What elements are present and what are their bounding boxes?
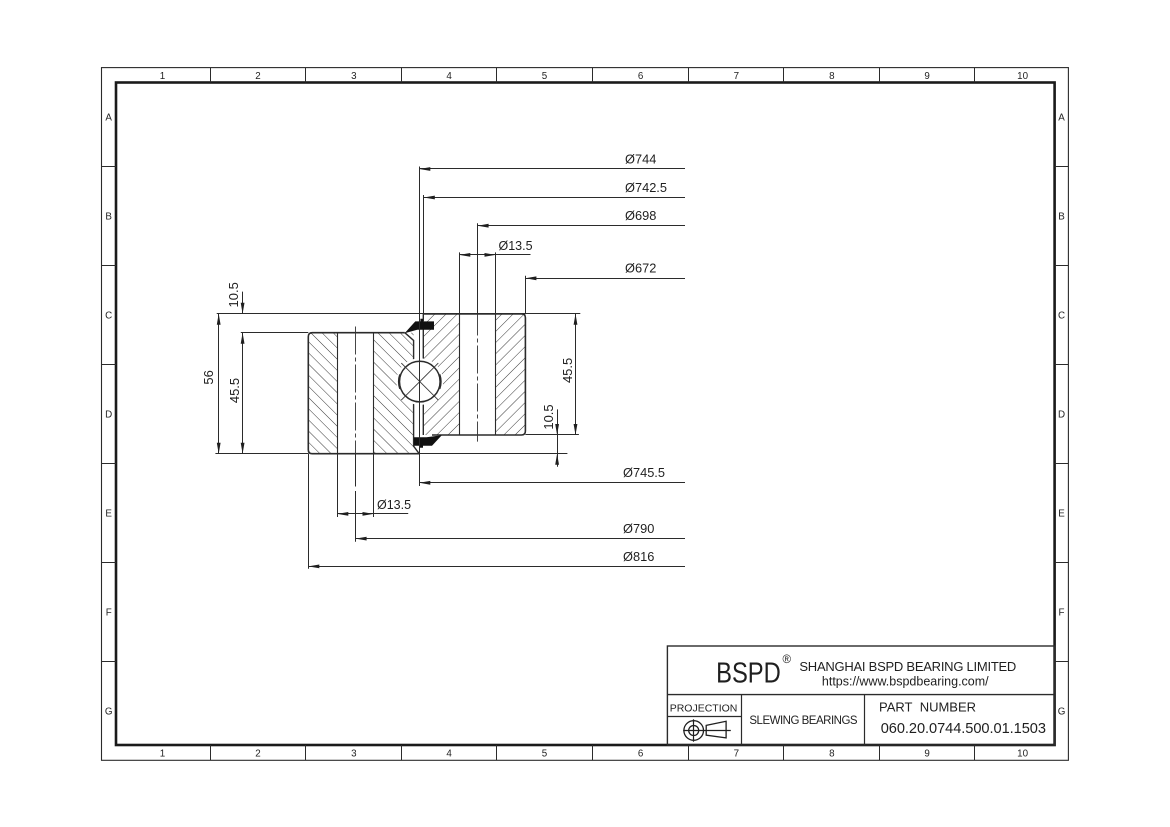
svg-text:6: 6 — [638, 71, 644, 82]
svg-text:56: 56 — [201, 370, 216, 384]
svg-text:F: F — [106, 607, 112, 618]
svg-text:7: 7 — [734, 749, 739, 760]
svg-text:Ø745.5: Ø745.5 — [623, 465, 665, 480]
svg-text:E: E — [1058, 509, 1065, 520]
svg-text:SLEWING BEARINGS: SLEWING BEARINGS — [749, 715, 857, 727]
svg-text:Ø744: Ø744 — [625, 151, 656, 166]
svg-text:PART NUMBER: PART NUMBER — [879, 700, 976, 715]
svg-text:10.5: 10.5 — [226, 282, 241, 307]
svg-text:8: 8 — [829, 71, 835, 82]
svg-text:Ø13.5: Ø13.5 — [499, 239, 533, 253]
svg-text:3: 3 — [351, 749, 357, 760]
svg-text:10: 10 — [1017, 749, 1028, 760]
svg-text:10.5: 10.5 — [541, 404, 556, 429]
svg-text:C: C — [105, 311, 112, 322]
svg-text:D: D — [105, 410, 112, 421]
svg-text:45.5: 45.5 — [560, 358, 575, 383]
svg-text:F: F — [1059, 607, 1065, 618]
svg-text:D: D — [1058, 410, 1065, 421]
svg-text:45.5: 45.5 — [227, 378, 242, 403]
svg-text:2: 2 — [255, 71, 260, 82]
svg-text:Ø698: Ø698 — [625, 208, 656, 223]
svg-text:B: B — [105, 212, 112, 223]
svg-text:2: 2 — [255, 749, 260, 760]
svg-text:A: A — [1058, 113, 1065, 124]
svg-text:8: 8 — [829, 749, 835, 760]
svg-text:1: 1 — [160, 71, 165, 82]
svg-text:10: 10 — [1017, 71, 1028, 82]
svg-text:6: 6 — [638, 749, 644, 760]
svg-text:A: A — [105, 113, 112, 124]
svg-text:SHANGHAI BSPD BEARING LIMITED: SHANGHAI BSPD BEARING LIMITED — [799, 659, 1016, 674]
svg-text:9: 9 — [924, 749, 929, 760]
svg-text:Ø742.5: Ø742.5 — [625, 180, 667, 195]
svg-text:PROJECTION: PROJECTION — [670, 703, 738, 715]
svg-text:1: 1 — [160, 749, 165, 760]
svg-text:9: 9 — [924, 71, 929, 82]
svg-text:G: G — [1058, 706, 1066, 717]
svg-text:Ø672: Ø672 — [625, 261, 656, 276]
svg-text:Ø790: Ø790 — [623, 521, 654, 536]
svg-text:C: C — [1058, 311, 1065, 322]
svg-text:3: 3 — [351, 71, 357, 82]
svg-text:®: ® — [783, 654, 792, 666]
svg-text:060.20.0744.500.01.1503: 060.20.0744.500.01.1503 — [881, 721, 1046, 737]
svg-text:E: E — [105, 509, 112, 520]
svg-text:5: 5 — [542, 71, 548, 82]
svg-text:BSPD: BSPD — [716, 656, 781, 689]
svg-text:5: 5 — [542, 749, 548, 760]
svg-text:7: 7 — [734, 71, 739, 82]
svg-text:B: B — [1058, 212, 1065, 223]
svg-text:Ø13.5: Ø13.5 — [377, 498, 411, 512]
svg-text:https://www.bspdbearing.com/: https://www.bspdbearing.com/ — [822, 675, 989, 689]
svg-text:4: 4 — [446, 749, 452, 760]
svg-text:4: 4 — [446, 71, 452, 82]
svg-text:Ø816: Ø816 — [623, 549, 654, 564]
svg-text:G: G — [105, 706, 113, 717]
